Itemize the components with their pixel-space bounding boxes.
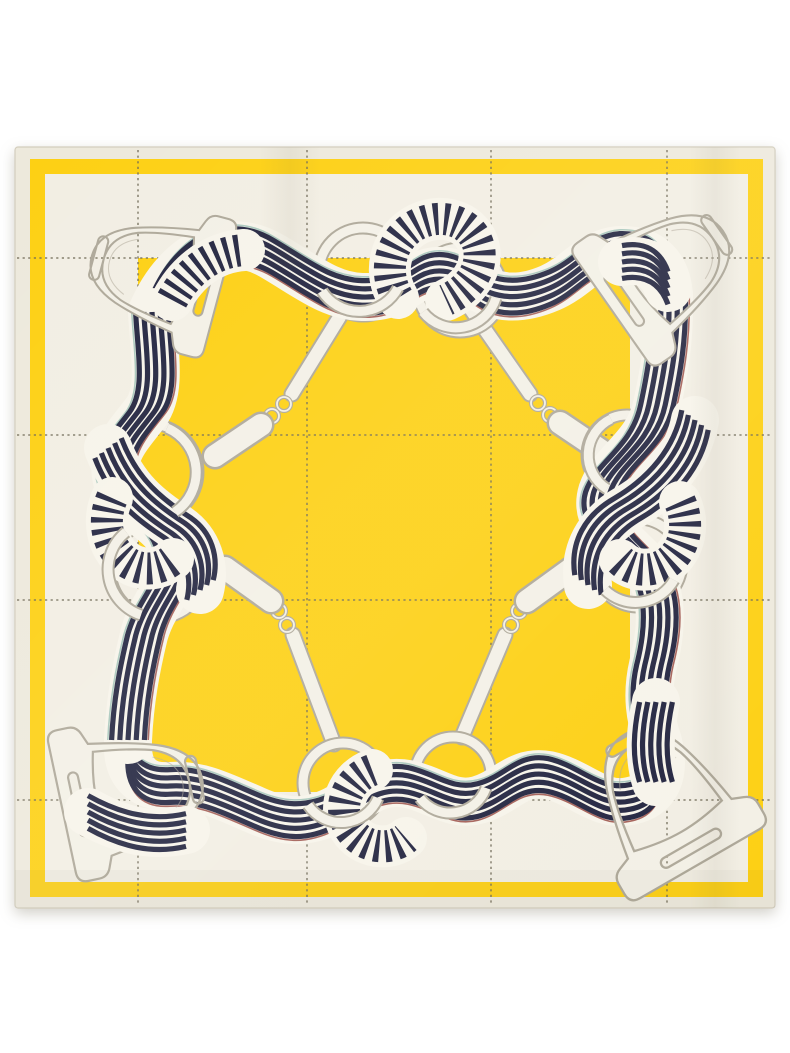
photo-page (0, 0, 790, 1053)
ribbon-over-bottom-right (634, 702, 672, 782)
yellow-center-panel (138, 258, 630, 792)
scarf-photo (0, 0, 790, 1053)
